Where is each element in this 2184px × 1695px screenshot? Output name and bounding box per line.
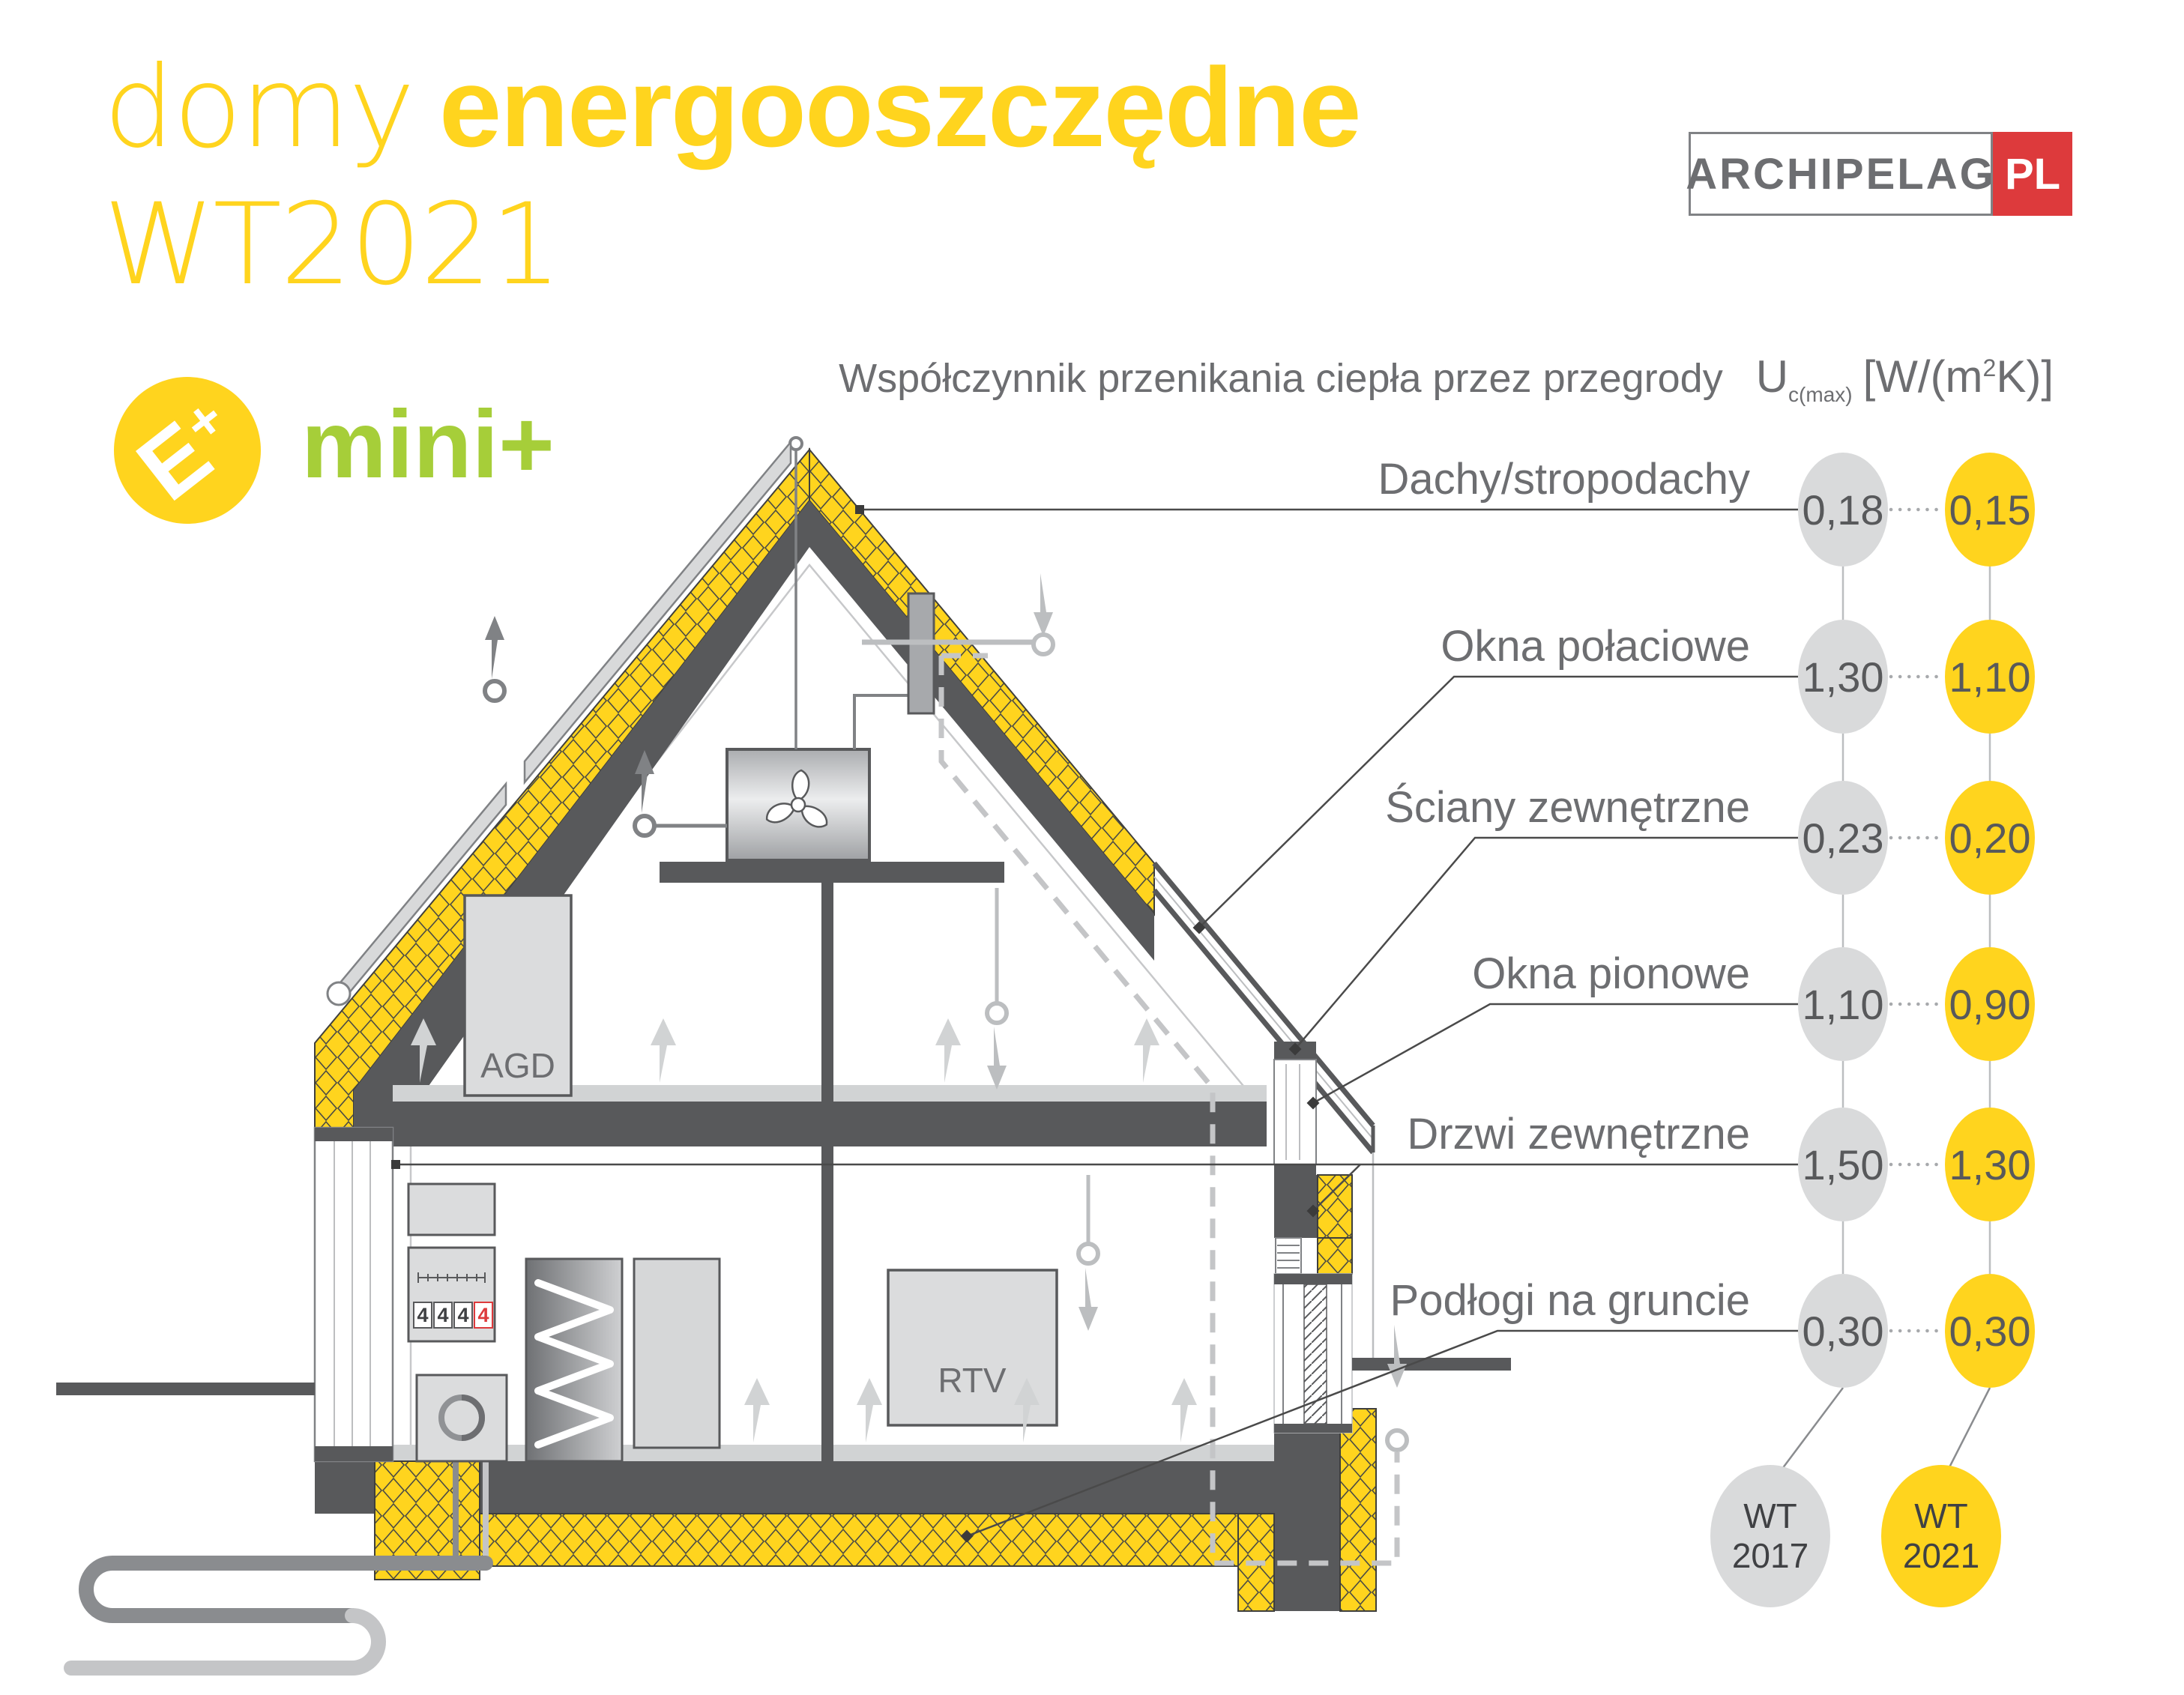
exterior-door-right (1274, 1274, 1352, 1433)
value-wt2017-podlogi: 0,30 (1798, 1274, 1888, 1388)
row-label-sciany: Ściany zewnętrzne (1385, 782, 1750, 833)
exhaust-air-arrow (1034, 573, 1053, 636)
value-wt2021-dachy: 0,15 (1945, 453, 2035, 566)
agd-label: AGD (480, 1046, 555, 1085)
archipelag-logo: ARCHIPELAG PL (1689, 132, 2072, 216)
value-wt2021-okna-polaciowe: 1,10 (1945, 620, 2035, 734)
unit-exp: 2 (1983, 354, 1997, 381)
legend-wt2017-line2: 2017 (1732, 1536, 1809, 1576)
roof-insulation-right (809, 450, 1154, 961)
legend-wt2021: WT 2021 (1881, 1465, 2001, 1607)
dotted-connectors (1891, 510, 1942, 1331)
title-line1: domyenergooszczędne (103, 39, 1360, 177)
value-wt2017-drzwi: 1,50 (1798, 1108, 1888, 1221)
archipelag-logo-name: ARCHIPELAG (1689, 132, 1993, 216)
rtv-label: RTV (938, 1361, 1006, 1400)
meter-digit: 4 (417, 1304, 428, 1326)
agd-appliance: AGD (465, 895, 571, 1096)
mini-plus-badge: mini+ (301, 390, 555, 500)
value-wt2017-okna-polaciowe: 1,30 (1798, 620, 1888, 734)
chimney-duct (908, 593, 934, 713)
intake-air-arrow (485, 616, 504, 679)
legend-wt2021-line1: WT (1914, 1496, 1968, 1536)
wall-unit-box (408, 1184, 495, 1235)
eplus-letter: E+ (122, 385, 253, 516)
value-wt2017-sciany: 0,23 (1798, 781, 1888, 895)
title-word-light: domy (103, 43, 414, 173)
meter-digit-red: 4 (477, 1304, 489, 1326)
page-title: domyenergooszczędne WT2021 (103, 39, 1360, 314)
legend-wt2021-line2: 2021 (1903, 1536, 1979, 1576)
callout-drzwi (396, 1164, 1798, 1211)
uvalue-header: Współczynnik przenikania ciepła przez pr… (839, 351, 2054, 407)
electricity-meter: 4 4 4 4 (408, 1248, 495, 1341)
value-wt2021-okna-pionowe: 0,90 (1945, 947, 2035, 1061)
heat-recovery-unit (727, 749, 869, 860)
wt-connectors (1782, 1388, 1990, 1469)
heat-pump (417, 1375, 507, 1461)
meter-digit: 4 (457, 1304, 468, 1326)
uvalue-header-text: Współczynnik przenikania ciepła przez pr… (839, 356, 1723, 401)
title-word-bold: energooszczędne (439, 44, 1360, 170)
uvalue-symbol: Uc(max) (1756, 351, 1853, 402)
legend-wt2017: WT 2017 (1710, 1465, 1830, 1607)
ground-line-left (56, 1383, 315, 1395)
value-wt2017-dachy: 0,18 (1798, 453, 1888, 566)
infographic-canvas: 4 4 4 4 AGD RTV (0, 0, 2184, 1695)
row-label-okna-pionowe: Okna pionowe (1472, 949, 1750, 999)
row-label-dachy: Dachy/stropodachy (1378, 454, 1750, 504)
value-wt2017-okna-pionowe: 1,10 (1798, 947, 1888, 1061)
archipelag-logo-pl: PL (1993, 132, 2072, 216)
legend-wt2017-line1: WT (1743, 1496, 1797, 1536)
knee-wall (1274, 1175, 1352, 1274)
unit-close: K)] (1996, 351, 2054, 402)
ground-vent-arrow (1387, 1325, 1407, 1388)
value-wt2021-podlogi: 0,30 (1945, 1274, 2035, 1388)
collar-beam-platform (660, 862, 1004, 883)
callout-okna-pionowe (1313, 1004, 1798, 1103)
storage-tank (634, 1259, 720, 1448)
row-label-okna-polaciowe: Okna połaciowe (1441, 621, 1750, 671)
patio-door-left (315, 1128, 393, 1461)
value-wt2021-sciany: 0,20 (1945, 781, 2035, 895)
center-wall (821, 883, 833, 1461)
uvalue-unit: [W/(m2K)] (1863, 351, 2054, 402)
eplus-badge: E+ (114, 377, 261, 524)
value-wt2021-drzwi: 1,30 (1945, 1108, 2035, 1221)
title-line2: WT2021 (103, 177, 1360, 314)
heat-exchanger (526, 1259, 622, 1461)
u-symbol-sub: c(max) (1788, 383, 1853, 406)
u-symbol: U (1756, 351, 1788, 402)
row-label-drzwi: Drzwi zewnętrzne (1407, 1109, 1750, 1159)
unit-open: [W/(m (1863, 351, 1983, 402)
row-label-podlogi: Podłogi na gruncie (1390, 1275, 1750, 1326)
vertical-window (1274, 1042, 1316, 1175)
ground-line-right (1352, 1358, 1511, 1371)
callout-sciany (1295, 838, 1798, 1049)
meter-digit: 4 (437, 1304, 448, 1326)
